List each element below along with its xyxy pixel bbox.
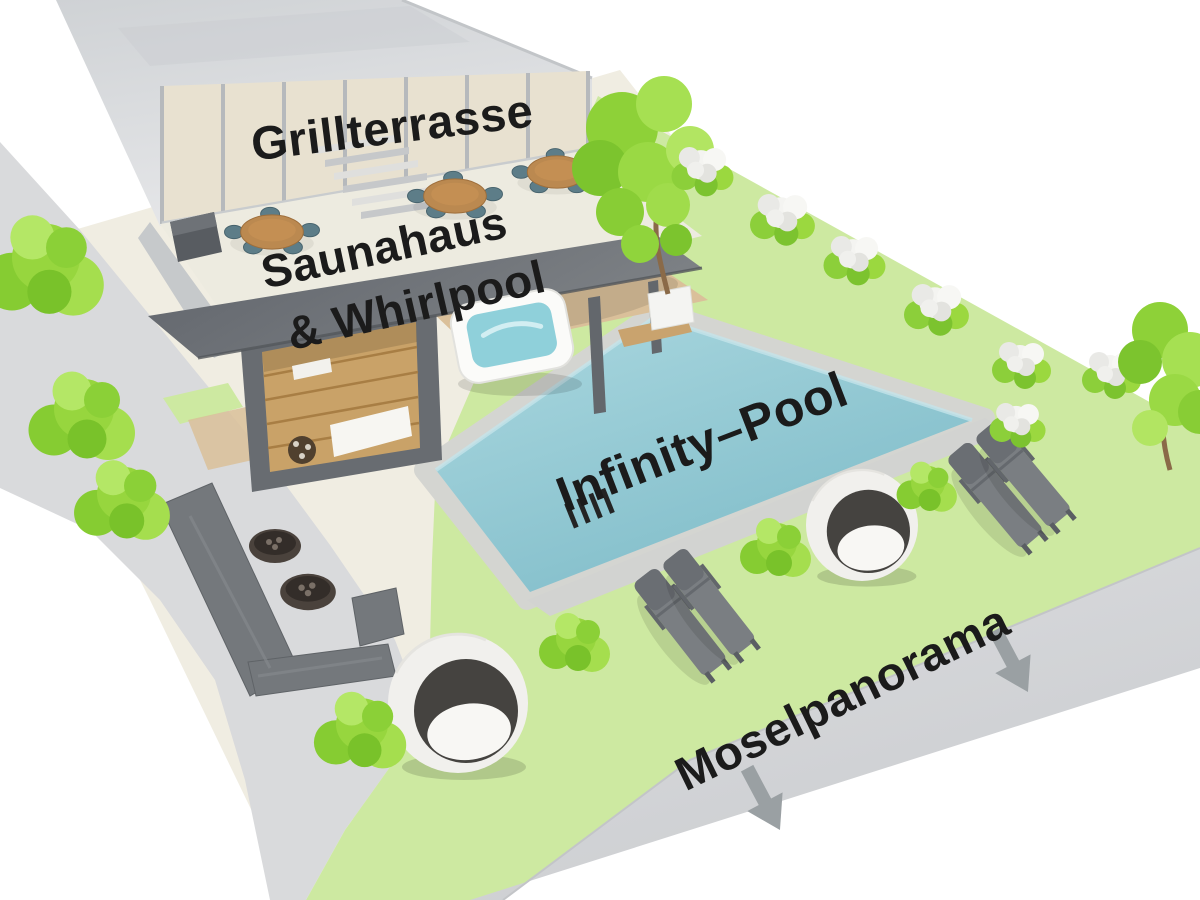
- flower-bush: [672, 147, 734, 196]
- flower-bush: [990, 403, 1046, 448]
- flower-bush: [992, 342, 1051, 389]
- flower-bush: [824, 236, 886, 285]
- flower-bush: [904, 284, 969, 336]
- fire-table-2: [280, 574, 336, 610]
- tree-planter: [648, 286, 694, 330]
- site-plan-illustration: Grillterrasse Saunahaus & Whirlpool Infi…: [0, 0, 1200, 900]
- flower-bush: [750, 194, 815, 246]
- fire-table-1: [249, 529, 301, 563]
- sauna-basket: [288, 436, 316, 464]
